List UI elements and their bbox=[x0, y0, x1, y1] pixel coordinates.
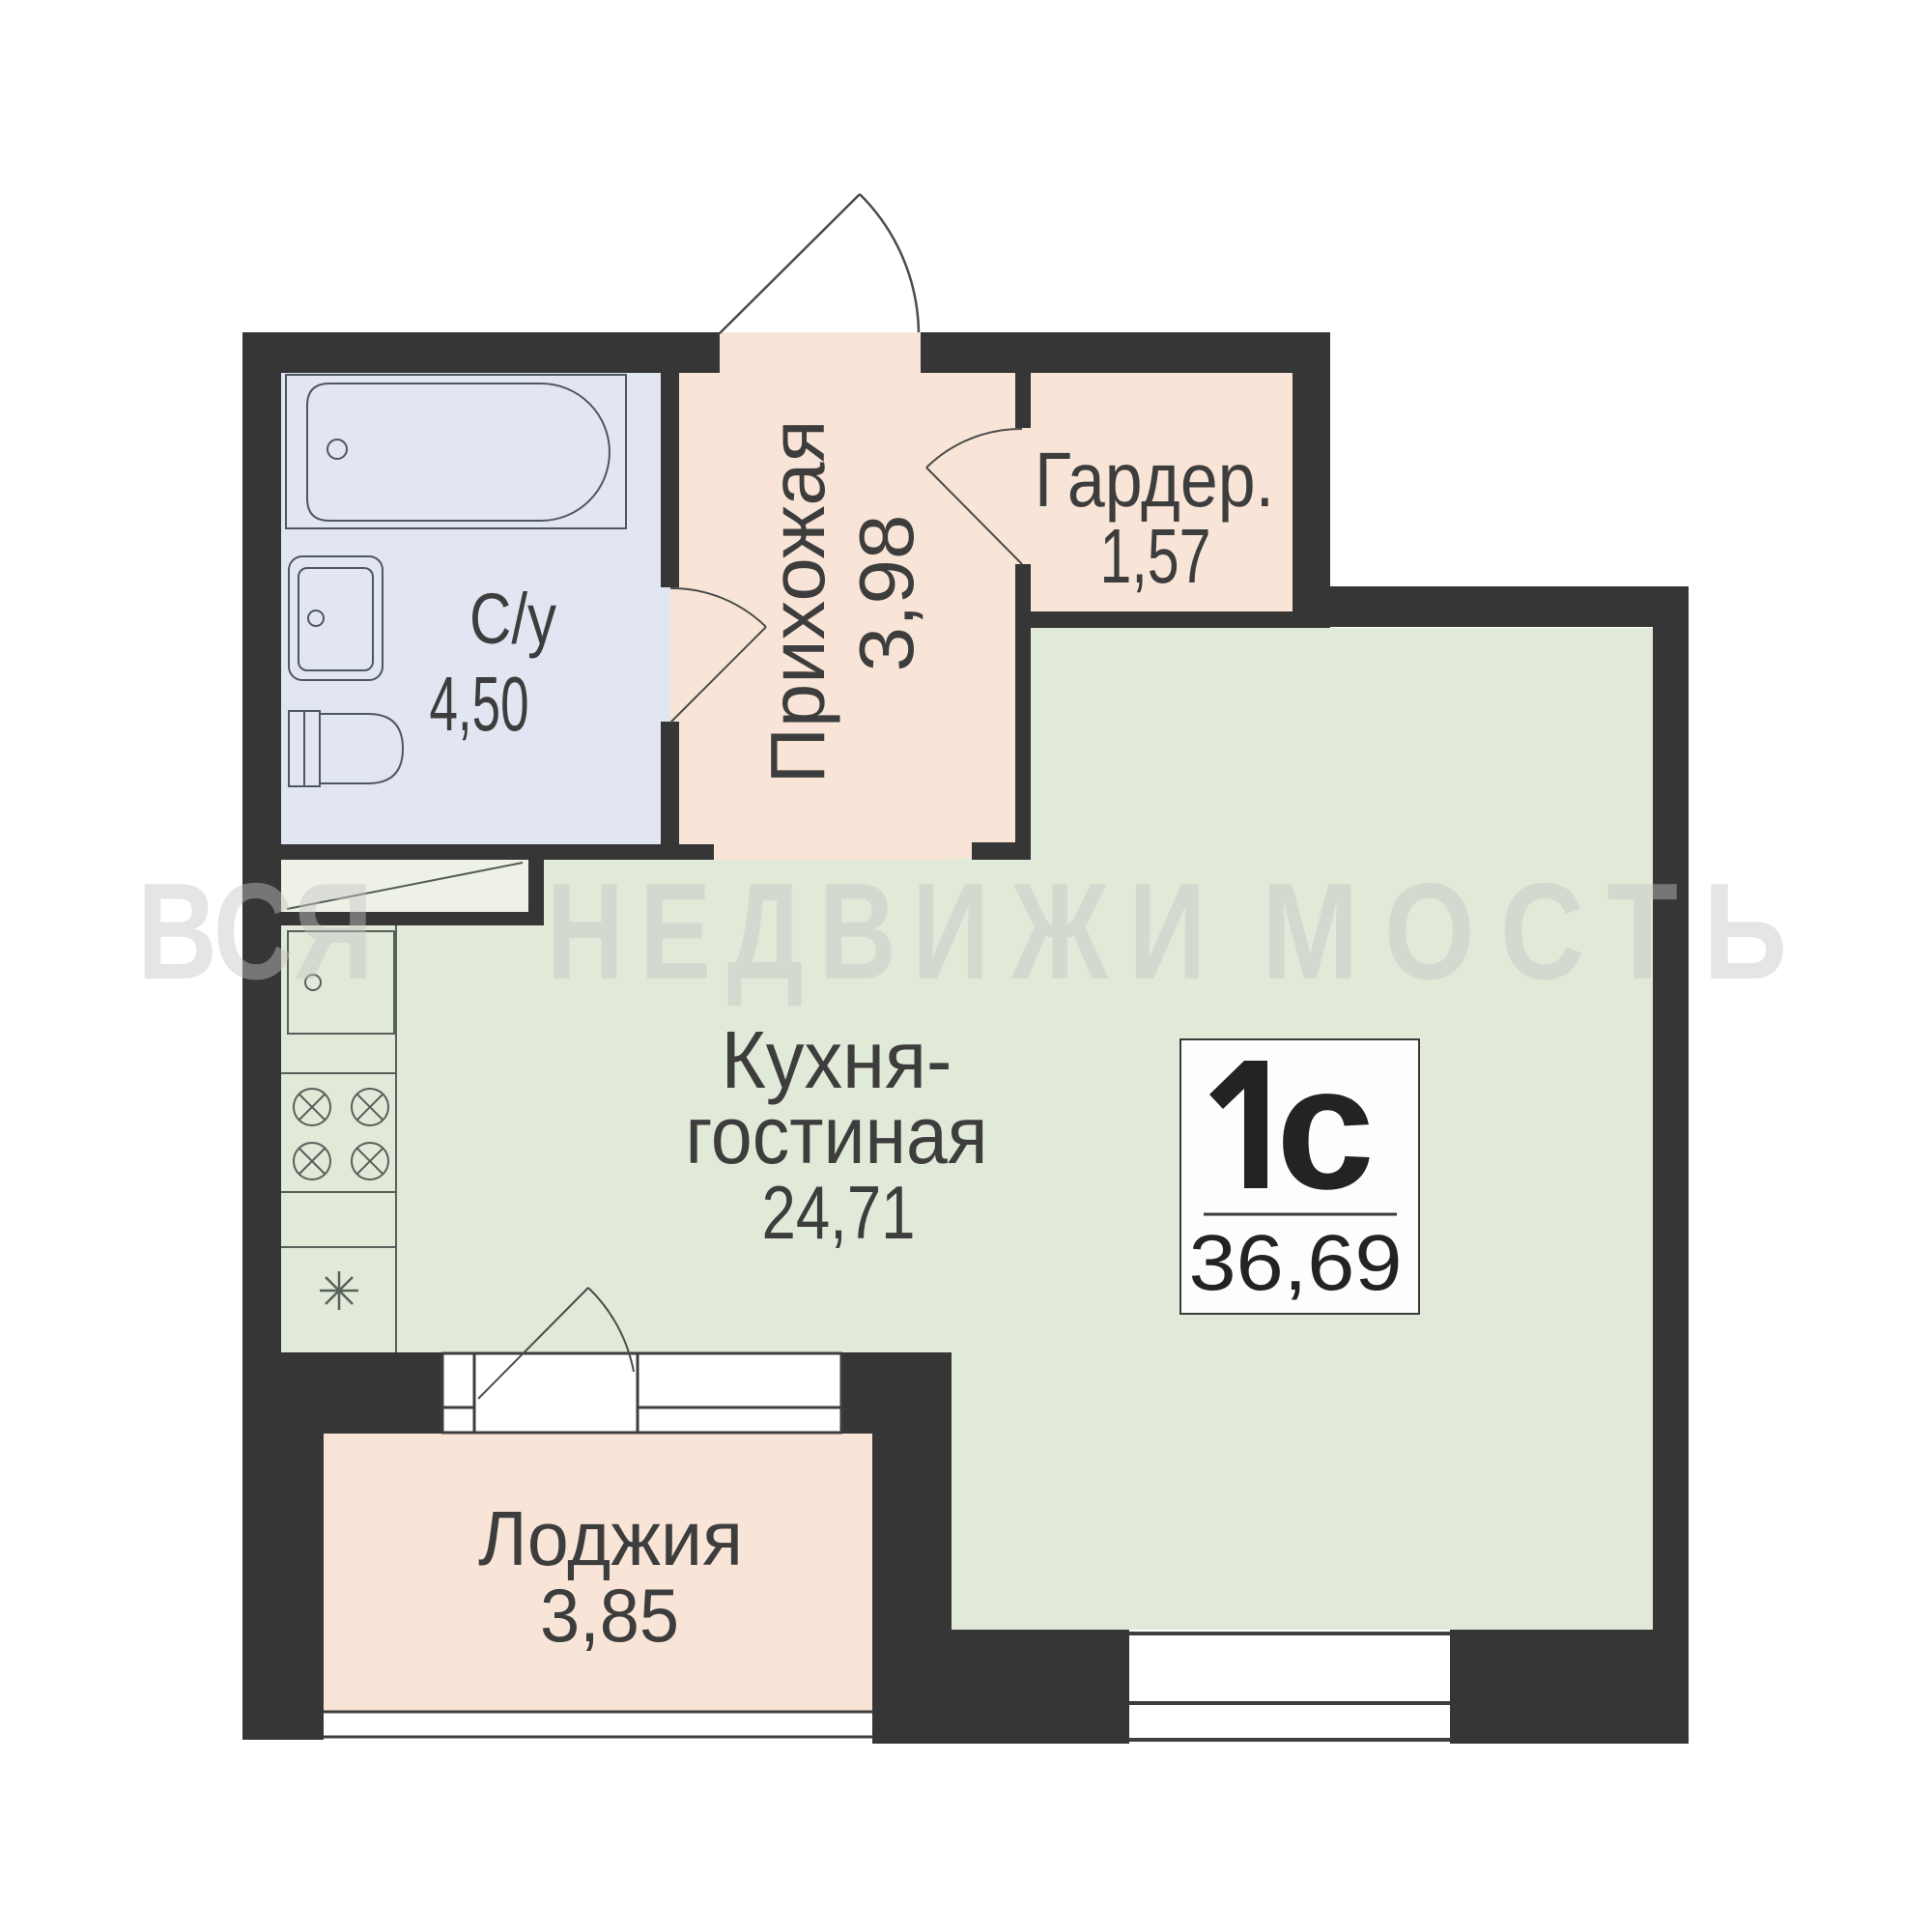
svg-text:НЕДВИ: НЕДВИ bbox=[547, 855, 989, 1008]
svg-text:МОСТЬ: МОСТЬ bbox=[1262, 855, 1787, 1008]
svg-text:4,50: 4,50 bbox=[430, 661, 529, 747]
svg-text:с: с bbox=[1276, 1029, 1375, 1226]
svg-text:Лоджия: Лоджия bbox=[478, 1495, 743, 1581]
svg-text:1,57: 1,57 bbox=[1100, 513, 1211, 599]
svg-text:36,69: 36,69 bbox=[1189, 1219, 1403, 1307]
svg-text:3,85: 3,85 bbox=[540, 1573, 679, 1658]
svg-text:Прихожая: Прихожая bbox=[754, 420, 840, 784]
svg-text:С/у: С/у bbox=[469, 579, 556, 659]
svg-text:3,98: 3,98 bbox=[843, 515, 929, 672]
svg-text:гостиная: гостиная bbox=[686, 1090, 988, 1180]
svg-text:ВСЯ: ВСЯ bbox=[137, 856, 373, 1009]
svg-text:24,71: 24,71 bbox=[762, 1170, 916, 1255]
svg-text:Гардер.: Гардер. bbox=[1035, 437, 1274, 523]
